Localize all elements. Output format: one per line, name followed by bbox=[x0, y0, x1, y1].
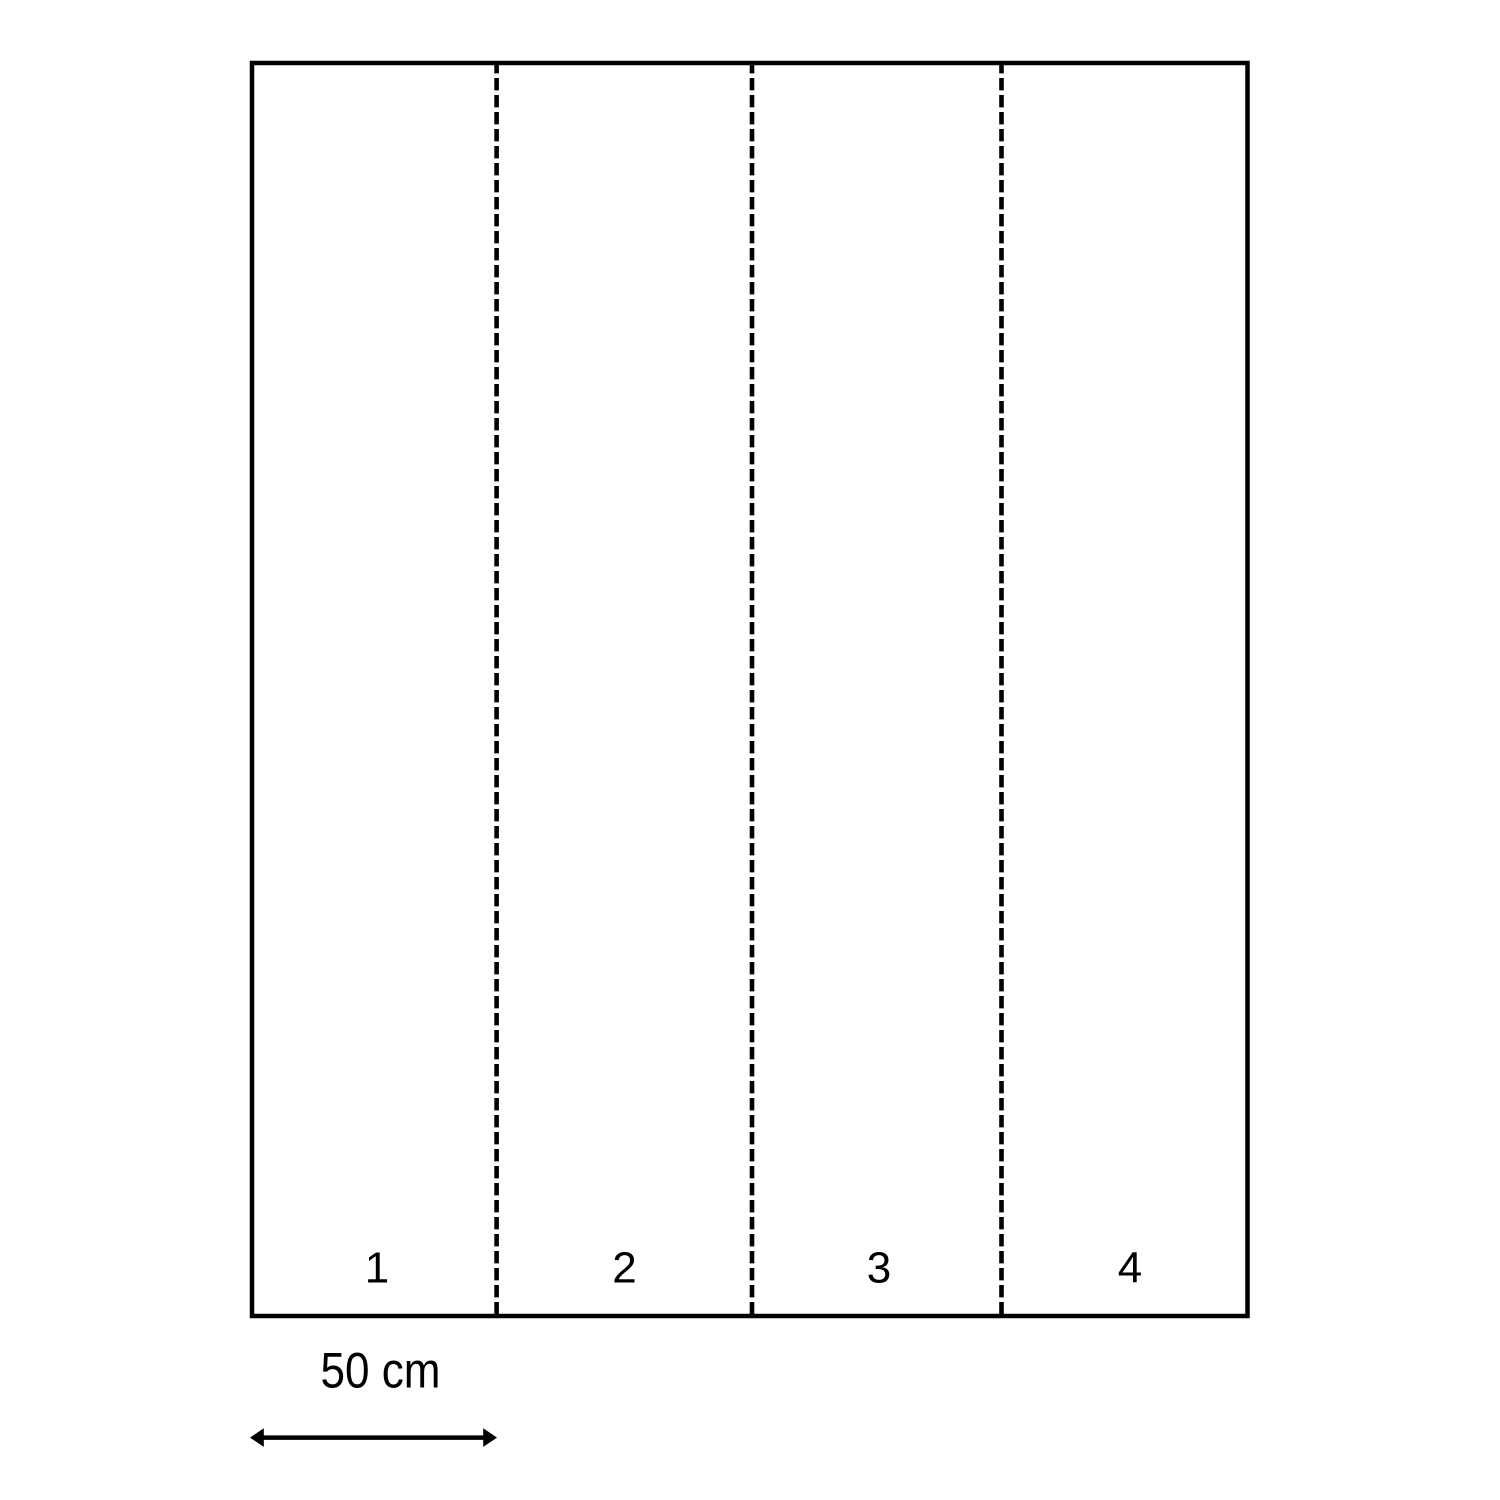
svg-text:2: 2 bbox=[612, 1243, 636, 1292]
svg-text:1: 1 bbox=[365, 1243, 389, 1292]
svg-text:3: 3 bbox=[867, 1243, 891, 1292]
svg-text:4: 4 bbox=[1118, 1243, 1142, 1292]
svg-text:50 cm: 50 cm bbox=[321, 1343, 441, 1399]
